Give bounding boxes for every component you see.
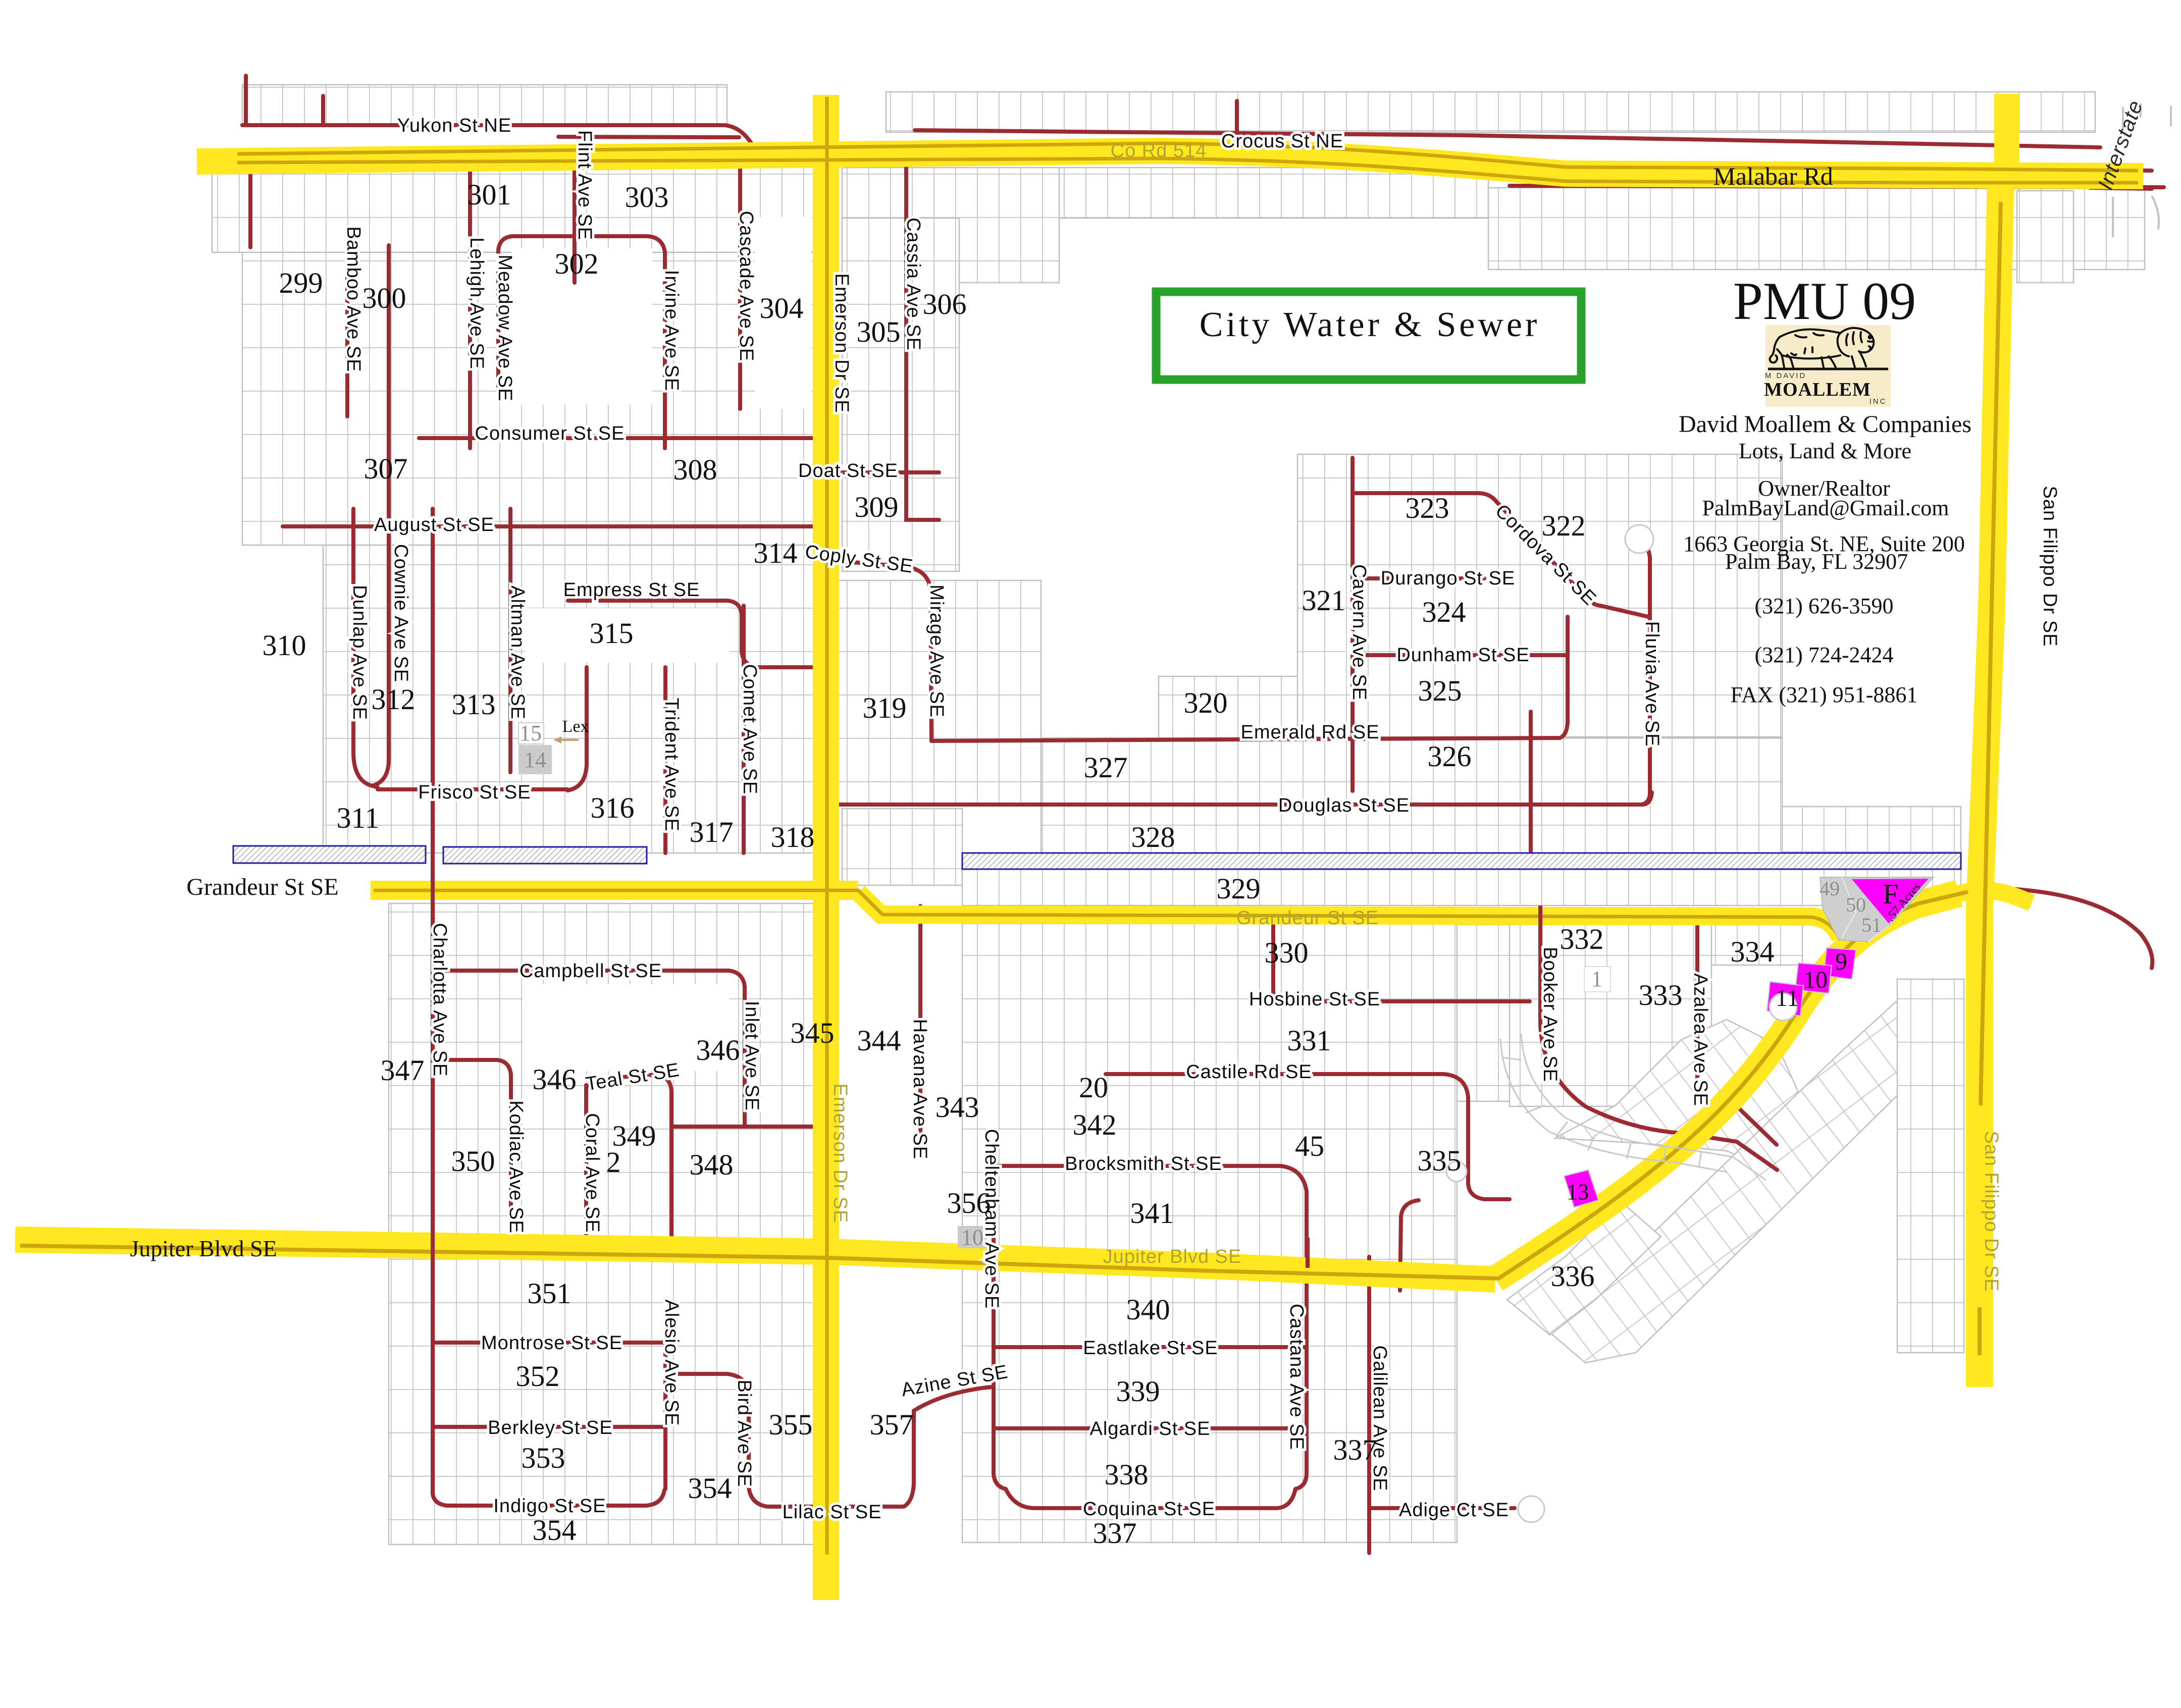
svg-text:304: 304 <box>760 292 804 325</box>
svg-text:15: 15 <box>520 721 542 745</box>
svg-text:Yukon St NE: Yukon St NE <box>397 115 511 136</box>
svg-text:318: 318 <box>771 821 815 853</box>
svg-text:Cavern Ave SE: Cavern Ave SE <box>1348 564 1370 701</box>
svg-text:347: 347 <box>381 1054 425 1087</box>
svg-text:325: 325 <box>1418 674 1462 707</box>
svg-text:339: 339 <box>1116 1375 1160 1408</box>
svg-text:Malabar Rd: Malabar Rd <box>1713 162 1833 190</box>
svg-text:PalmBayLand@Gmail.com: PalmBayLand@Gmail.com <box>1702 496 1949 520</box>
svg-text:344: 344 <box>857 1024 901 1057</box>
svg-text:350: 350 <box>451 1145 495 1178</box>
svg-text:Hosbine St SE: Hosbine St SE <box>1249 989 1380 1010</box>
svg-text:299: 299 <box>279 266 323 299</box>
svg-text:316: 316 <box>591 791 635 824</box>
svg-text:357: 357 <box>870 1408 914 1441</box>
svg-text:332: 332 <box>1560 923 1604 955</box>
svg-text:Palm Bay, FL 32907: Palm Bay, FL 32907 <box>1725 549 1908 574</box>
svg-text:341: 341 <box>1130 1197 1174 1230</box>
svg-text:Eastlake St SE: Eastlake St SE <box>1083 1338 1218 1359</box>
svg-text:Grandeur St SE: Grandeur St SE <box>1236 908 1379 929</box>
svg-text:Lots, Land & More: Lots, Land & More <box>1739 439 1911 463</box>
svg-text:Douglas St SE: Douglas St SE <box>1278 795 1410 816</box>
svg-text:11: 11 <box>1776 985 1799 1011</box>
svg-text:51: 51 <box>1861 914 1882 936</box>
svg-text:Durango St SE: Durango St SE <box>1381 568 1515 589</box>
svg-text:Bamboo Ave SE: Bamboo Ave SE <box>343 226 364 372</box>
svg-text:336: 336 <box>1551 1260 1595 1293</box>
svg-text:Azalea Ave SE: Azalea Ave SE <box>1690 973 1711 1106</box>
svg-text:326: 326 <box>1428 740 1472 773</box>
svg-text:Bird Ave SE: Bird Ave SE <box>734 1379 755 1487</box>
svg-text:Emerson Dr SE: Emerson Dr SE <box>829 1084 851 1223</box>
svg-text:Flint Ave SE: Flint Ave SE <box>574 130 595 240</box>
svg-text:Castile Rd SE: Castile Rd SE <box>1186 1061 1312 1083</box>
svg-text:320: 320 <box>1184 686 1228 719</box>
svg-text:308: 308 <box>673 453 717 486</box>
svg-text:Brocksmith St SE: Brocksmith St SE <box>1065 1153 1222 1175</box>
svg-text:324: 324 <box>1422 596 1466 628</box>
svg-text:311: 311 <box>337 802 380 834</box>
svg-text:352: 352 <box>516 1360 560 1393</box>
svg-text:49: 49 <box>1820 877 1840 900</box>
svg-text:Galilean Ave SE: Galilean Ave SE <box>1369 1346 1390 1491</box>
svg-text:Charlotta Ave SE: Charlotta Ave SE <box>429 923 450 1077</box>
svg-text:337: 337 <box>1093 1517 1137 1550</box>
svg-text:Fluvia Ave SE: Fluvia Ave SE <box>1641 621 1663 747</box>
svg-text:346: 346 <box>696 1034 740 1066</box>
svg-text:334: 334 <box>1731 935 1775 968</box>
svg-text:Cownie Ave SE: Cownie Ave SE <box>390 544 411 682</box>
svg-text:312: 312 <box>372 683 416 716</box>
svg-text:Jupiter Blvd SE: Jupiter Blvd SE <box>1103 1246 1242 1267</box>
svg-text:Crocus St NE: Crocus St NE <box>1221 131 1343 152</box>
svg-text:301: 301 <box>468 178 511 211</box>
svg-text:Grandeur St SE: Grandeur St SE <box>186 874 338 900</box>
svg-text:330: 330 <box>1265 936 1309 969</box>
svg-text:Mirage Ave SE: Mirage Ave SE <box>926 584 947 718</box>
svg-text:355: 355 <box>769 1408 813 1441</box>
svg-text:338: 338 <box>1105 1458 1149 1491</box>
svg-text:Campbell St SE: Campbell St SE <box>520 960 662 982</box>
svg-text:David Moallem & Companies: David Moallem & Companies <box>1679 411 1971 438</box>
svg-text:306: 306 <box>923 288 967 321</box>
svg-text:314: 314 <box>754 537 798 569</box>
svg-text:FAX (321) 951-8861: FAX (321) 951-8861 <box>1731 682 1918 707</box>
svg-text:Frisco St SE: Frisco St SE <box>418 782 531 803</box>
svg-text:321: 321 <box>1302 584 1346 617</box>
svg-text:333: 333 <box>1639 979 1683 1011</box>
svg-text:345: 345 <box>791 1017 835 1049</box>
svg-text:300: 300 <box>362 282 406 314</box>
svg-text:Comet Ave SE: Comet Ave SE <box>739 664 760 794</box>
svg-text:Meadow Ave SE: Meadow Ave SE <box>494 254 515 401</box>
svg-text:335: 335 <box>1418 1144 1462 1177</box>
svg-text:307: 307 <box>364 452 408 485</box>
svg-text:Dunham St SE: Dunham St SE <box>1396 645 1529 666</box>
svg-text:50: 50 <box>1846 893 1866 916</box>
svg-text:303: 303 <box>625 181 669 213</box>
svg-text:Lilac St SE: Lilac St SE <box>783 1502 882 1523</box>
svg-text:331: 331 <box>1287 1024 1331 1057</box>
svg-text:348: 348 <box>690 1148 734 1181</box>
svg-text:45: 45 <box>1295 1130 1324 1162</box>
svg-text:Irvine Ave SE: Irvine Ave SE <box>661 270 682 391</box>
svg-text:9: 9 <box>1835 948 1847 975</box>
svg-text:329: 329 <box>1217 872 1261 905</box>
svg-text:322: 322 <box>1542 509 1586 542</box>
svg-text:Lex: Lex <box>562 717 589 736</box>
svg-text:13: 13 <box>1567 1180 1589 1204</box>
svg-text:302: 302 <box>555 247 599 280</box>
svg-text:Altman Ave SE: Altman Ave SE <box>507 585 528 720</box>
svg-text:1: 1 <box>1591 967 1602 991</box>
svg-text:(321) 626-3590: (321) 626-3590 <box>1755 594 1894 618</box>
svg-text:343: 343 <box>936 1091 979 1124</box>
svg-text:Berkley St SE: Berkley St SE <box>488 1417 612 1438</box>
svg-text:Trident Ave SE: Trident Ave SE <box>661 698 682 831</box>
svg-text:Castana Ave SE: Castana Ave SE <box>1286 1304 1307 1450</box>
svg-text:San Filippo Dr SE: San Filippo Dr SE <box>1981 1131 2002 1292</box>
svg-text:PMU 09: PMU 09 <box>1733 272 1916 331</box>
svg-text:Co Rd 514: Co Rd 514 <box>1111 140 1207 162</box>
svg-text:319: 319 <box>863 691 907 724</box>
svg-text:Inlet Ave SE: Inlet Ave SE <box>741 1001 762 1111</box>
svg-text:353: 353 <box>522 1442 565 1474</box>
svg-text:337: 337 <box>1333 1433 1377 1466</box>
svg-text:310: 310 <box>263 629 306 662</box>
svg-text:Montrose St SE: Montrose St SE <box>481 1332 622 1354</box>
svg-text:San Filippo Dr SE: San Filippo Dr SE <box>2039 486 2060 647</box>
svg-text:Cascade Ave SE: Cascade Ave SE <box>736 211 757 361</box>
svg-text:Emerson Dr SE: Emerson Dr SE <box>831 274 852 413</box>
svg-text:INC: INC <box>1870 397 1887 406</box>
svg-text:317: 317 <box>690 816 734 848</box>
svg-text:Havana Ave SE: Havana Ave SE <box>909 1019 930 1159</box>
svg-text:Coral Ave SE: Coral Ave SE <box>582 1113 603 1233</box>
svg-text:354: 354 <box>533 1514 577 1546</box>
svg-text:351: 351 <box>528 1277 572 1310</box>
svg-text:Alesio Ave SE: Alesio Ave SE <box>661 1299 682 1426</box>
svg-text:305: 305 <box>857 315 901 348</box>
svg-text:Doat St SE: Doat St SE <box>798 460 898 482</box>
svg-text:14: 14 <box>524 748 546 772</box>
svg-text:MOALLEM: MOALLEM <box>1764 379 1871 400</box>
svg-text:315: 315 <box>590 617 634 650</box>
svg-text:Booker Ave SE: Booker Ave SE <box>1539 947 1561 1082</box>
svg-text:327: 327 <box>1084 751 1128 784</box>
svg-text:Cassia Ave SE: Cassia Ave SE <box>903 218 924 351</box>
svg-text:City Water & Sewer: City Water & Sewer <box>1200 305 1540 344</box>
svg-text:Jupiter Blvd SE: Jupiter Blvd SE <box>130 1236 277 1261</box>
svg-text:Lehigh Ave SE: Lehigh Ave SE <box>466 237 487 369</box>
svg-text:Kodiac Ave SE: Kodiac Ave SE <box>505 1100 527 1234</box>
svg-text:354: 354 <box>688 1472 732 1505</box>
svg-text:(321) 724-2424: (321) 724-2424 <box>1755 643 1894 667</box>
svg-text:10: 10 <box>1803 967 1828 993</box>
svg-text:Consumer St SE: Consumer St SE <box>475 423 625 444</box>
svg-text:Emerald Rd SE: Emerald Rd SE <box>1241 722 1380 743</box>
svg-text:Adige Ct SE: Adige Ct SE <box>1399 1500 1509 1521</box>
svg-text:313: 313 <box>452 688 496 721</box>
svg-text:340: 340 <box>1126 1293 1170 1326</box>
svg-text:10: 10 <box>961 1225 983 1250</box>
svg-text:2: 2 <box>606 1146 621 1179</box>
svg-text:356: 356 <box>947 1187 991 1219</box>
svg-text:328: 328 <box>1131 821 1175 853</box>
svg-text:346: 346 <box>533 1063 577 1096</box>
svg-text:309: 309 <box>855 491 899 523</box>
svg-text:20: 20 <box>1079 1071 1108 1104</box>
svg-text:323: 323 <box>1406 492 1449 524</box>
svg-text:Dunlap Ave SE: Dunlap Ave SE <box>349 585 370 720</box>
svg-text:Empress St SE: Empress St SE <box>563 579 700 601</box>
svg-text:August St SE: August St SE <box>374 514 494 536</box>
svg-text:342: 342 <box>1073 1108 1117 1141</box>
svg-text:Algardi St SE: Algardi St SE <box>1090 1418 1211 1439</box>
